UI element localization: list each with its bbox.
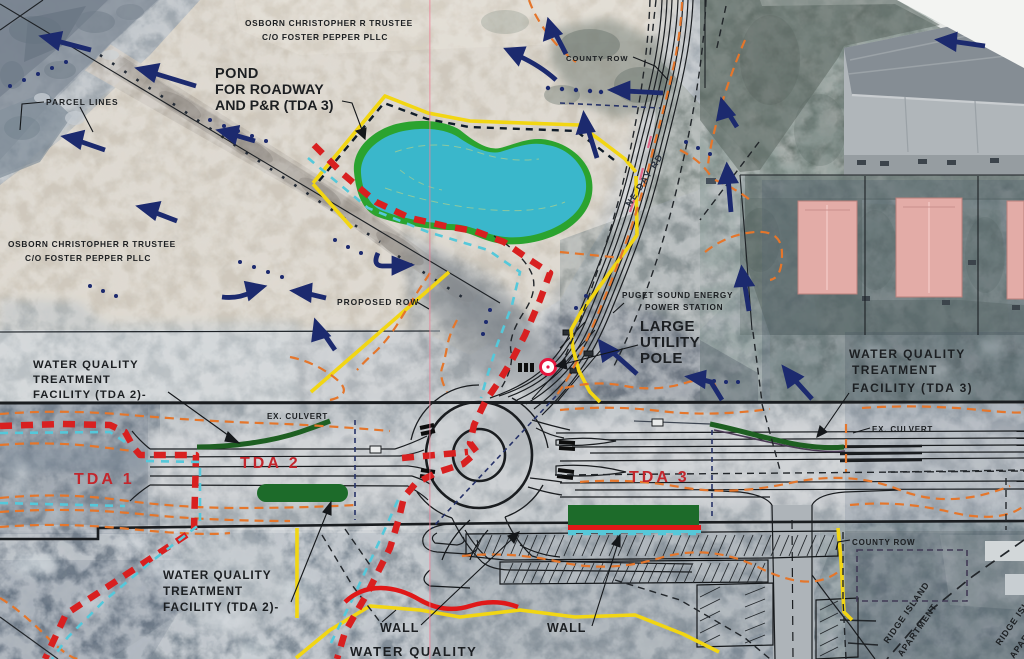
- svg-text:EX. CULVERT: EX. CULVERT: [267, 412, 328, 421]
- svg-text:POLE: POLE: [640, 350, 683, 367]
- svg-text:POND: POND: [215, 66, 259, 82]
- svg-text:C/O FOSTER PEPPER PLLC: C/O FOSTER PEPPER PLLC: [25, 253, 151, 263]
- svg-text:FACILITY (TDA 2)-: FACILITY (TDA 2)-: [163, 600, 279, 614]
- svg-text:COUNTY ROW: COUNTY ROW: [852, 538, 915, 547]
- svg-text:WATER QUALITY: WATER QUALITY: [350, 644, 477, 659]
- svg-text:TDA 3: TDA 3: [629, 469, 690, 486]
- svg-text:WATER QUALITY: WATER QUALITY: [849, 347, 966, 361]
- svg-text:PUGET SOUND ENERGY: PUGET SOUND ENERGY: [622, 291, 733, 300]
- svg-text:AND P&R (TDA 3): AND P&R (TDA 3): [215, 98, 334, 114]
- svg-text:OSBORN CHRISTOPHER R TRUSTEE: OSBORN CHRISTOPHER R TRUSTEE: [245, 18, 413, 28]
- svg-text:POWER STATION: POWER STATION: [645, 303, 723, 312]
- svg-text:WALL: WALL: [380, 621, 419, 635]
- svg-text:LARGE: LARGE: [640, 318, 695, 335]
- svg-text:WALL: WALL: [547, 621, 586, 635]
- svg-text:WATER QUALITY: WATER QUALITY: [163, 568, 271, 582]
- svg-text:TREATMENT: TREATMENT: [163, 584, 243, 598]
- svg-text:PARCEL LINES: PARCEL LINES: [46, 97, 119, 107]
- svg-text:FOR ROADWAY: FOR ROADWAY: [215, 82, 324, 98]
- svg-text:C/O FOSTER PEPPER PLLC: C/O FOSTER PEPPER PLLC: [262, 32, 388, 42]
- svg-text:TREATMENT: TREATMENT: [852, 363, 938, 377]
- svg-text:OSBORN CHRISTOPHER R TRUSTEE: OSBORN CHRISTOPHER R TRUSTEE: [8, 239, 176, 249]
- svg-text:WATER QUALITY: WATER QUALITY: [33, 359, 139, 371]
- svg-text:EX. CULVERT: EX. CULVERT: [872, 425, 933, 434]
- svg-text:FACILITY (TDA 2)-: FACILITY (TDA 2)-: [33, 389, 147, 401]
- svg-text:FACILITY (TDA 3): FACILITY (TDA 3): [852, 381, 973, 395]
- svg-text:UTILITY: UTILITY: [640, 334, 700, 351]
- svg-text:TREATMENT: TREATMENT: [33, 374, 111, 386]
- svg-text:COUNTY ROW: COUNTY ROW: [566, 54, 629, 63]
- svg-text:TDA 2: TDA 2: [240, 455, 301, 472]
- svg-text:PROPOSED ROW: PROPOSED ROW: [337, 297, 419, 307]
- svg-text:TDA 1: TDA 1: [74, 471, 135, 488]
